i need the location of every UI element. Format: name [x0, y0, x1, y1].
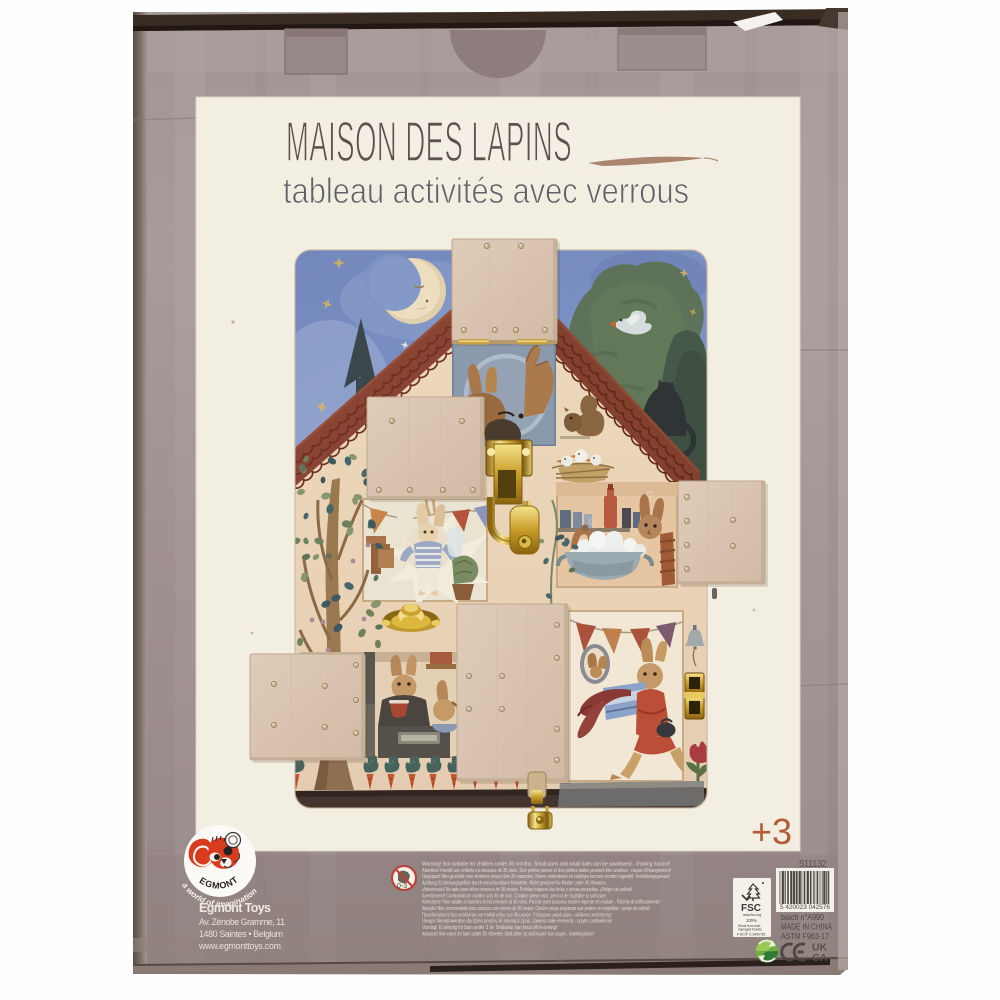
svg-text:Προειδοποίηση! Δεν κατάλληλο γ: Προειδοποίηση! Δεν κατάλληλο για παιδιά …	[422, 911, 612, 918]
svg-text:Warning! Not suitable for chil: Warning! Not suitable for children under…	[422, 862, 670, 868]
svg-text:+3: +3	[751, 811, 792, 852]
svg-text:Uwaga! Nieodpowiednie dla dzie: Uwaga! Nieodpowiednie dla dzieci poniżej…	[422, 919, 612, 925]
svg-text:MAISON DES LAPINS: MAISON DES LAPINS	[286, 110, 572, 174]
svg-text:MADE IN CHINA: MADE IN CHINA	[781, 922, 832, 932]
svg-text:www.fsc.org: www.fsc.org	[743, 913, 761, 917]
svg-text:Opgepast! Niet geschikt voor k: Opgepast! Niet geschikt voor kinderen jo…	[422, 874, 670, 880]
svg-text:ASTM F963-17: ASTM F963-17	[781, 931, 829, 941]
svg-text:tableau activités avec verrous: tableau activités avec verrous	[283, 170, 689, 211]
svg-text:Varning! Ej lämplig för barn u: Varning! Ej lämplig för barn under 3 år!…	[422, 924, 557, 931]
svg-text:Attention! Interdit aux enfant: Attention! Interdit aux enfants en-desso…	[422, 868, 671, 874]
svg-text:Atenção! Não recomendado para: Atenção! Não recomendado para crianças c…	[422, 906, 650, 912]
svg-text:CA: CA	[812, 952, 828, 964]
svg-text:100%: 100%	[746, 918, 757, 923]
svg-text:Av. Zénobe Gramme, 11: Av. Zénobe Gramme, 11	[199, 917, 285, 927]
svg-text:Achtung! Erstickungsgefahr dur: Achtung! Erstickungsgefahr durch verschl…	[422, 881, 607, 887]
svg-text:Attenzione! Non adatto ai bamb: Attenzione! Non adatto ai bambini di età…	[422, 900, 660, 906]
svg-text:0-3: 0-3	[397, 883, 407, 890]
svg-text:Avertisment! Contraindicat cop: Avertisment! Contraindicat copiilor sub …	[422, 893, 607, 899]
svg-text:1480 Saintes • Belgium: 1480 Saintes • Belgium	[199, 929, 283, 939]
svg-text:5 420023 042576: 5 420023 042576	[780, 905, 831, 911]
svg-text:Egmont Toys: Egmont Toys	[199, 901, 271, 915]
svg-text:FSC® C146735: FSC® C146735	[737, 932, 766, 937]
svg-text:batch n°A990: batch n°A990	[781, 912, 824, 922]
svg-text:¡Advertencia! No apto para niñ: ¡Advertencia! No apto para niños menores…	[422, 887, 632, 893]
svg-text:www.egmonttoys.com: www.egmonttoys.com	[198, 941, 281, 951]
svg-text:Advarsel! Ikke egnet for barn: Advarsel! Ikke egnet for barn under 36 m…	[422, 930, 594, 937]
